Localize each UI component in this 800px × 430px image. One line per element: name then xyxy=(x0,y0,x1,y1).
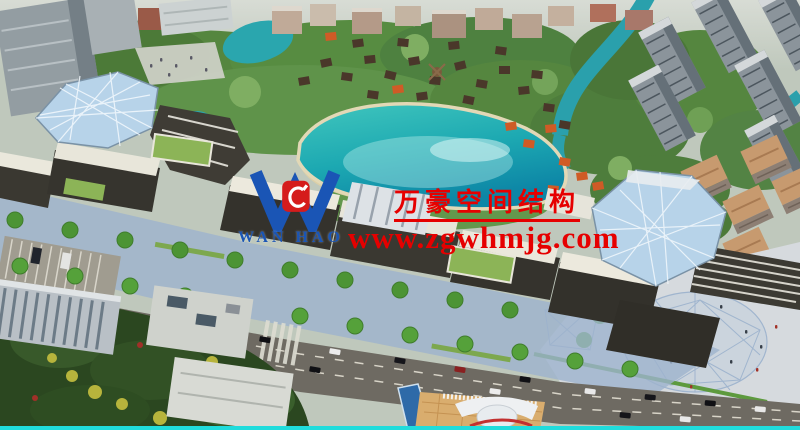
plaza-top xyxy=(135,42,225,85)
white-dome xyxy=(477,405,517,429)
rendering-image: WAN HAO 万豪空间结构 www.zgwhmjg.com xyxy=(0,0,800,430)
aerial-scene xyxy=(0,0,800,430)
bottom-accent-line xyxy=(0,426,800,430)
